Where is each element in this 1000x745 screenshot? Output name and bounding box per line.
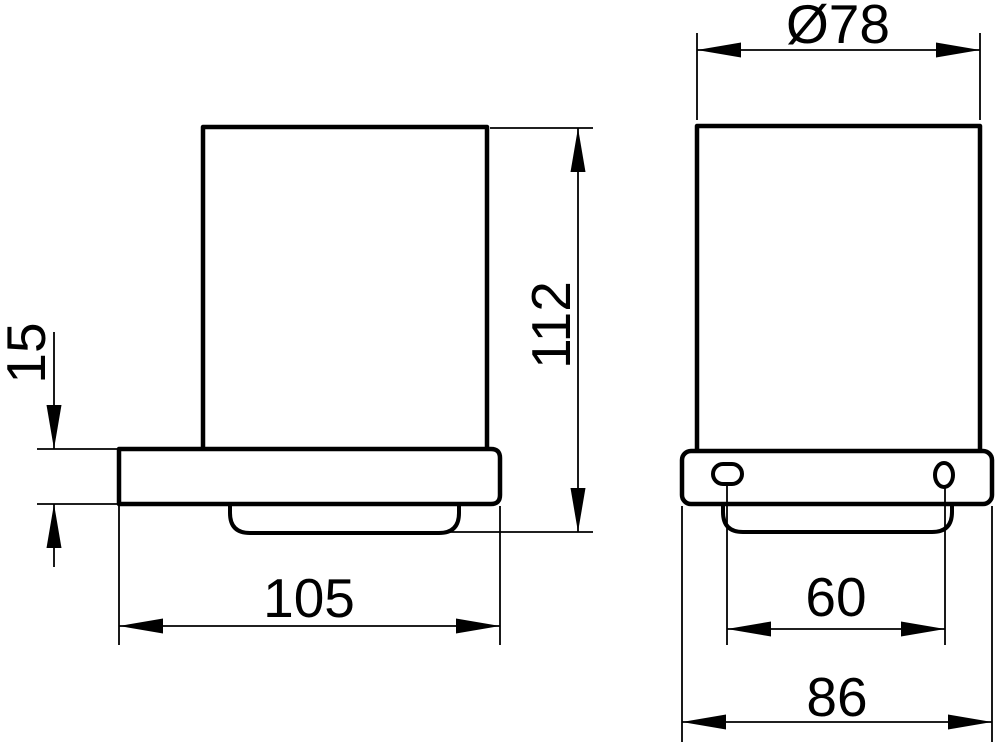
mounting-slot-hole xyxy=(713,464,742,484)
front-view: Ø78 60 86 xyxy=(682,0,992,742)
dim-tumbler-diameter: Ø78 xyxy=(697,0,980,120)
dim-label-112: 112 xyxy=(520,281,582,369)
side-view: 15 112 105 xyxy=(0,127,593,645)
side-tumbler-body xyxy=(203,127,487,449)
dim-label-105: 105 xyxy=(263,567,355,629)
front-tumbler-body xyxy=(697,126,980,451)
side-holder-bracket xyxy=(119,449,500,504)
drawing-sheet: 15 112 105 xyxy=(0,0,1000,745)
dim-label-diameter: Ø78 xyxy=(786,0,890,55)
mounting-round-hole xyxy=(935,463,953,487)
dim-label-86: 86 xyxy=(806,666,867,728)
technical-drawing: 15 112 105 xyxy=(0,0,1000,745)
dim-bracket-thickness: 15 xyxy=(0,322,119,567)
dim-label-60: 60 xyxy=(805,566,866,628)
dim-label-15: 15 xyxy=(0,322,57,383)
